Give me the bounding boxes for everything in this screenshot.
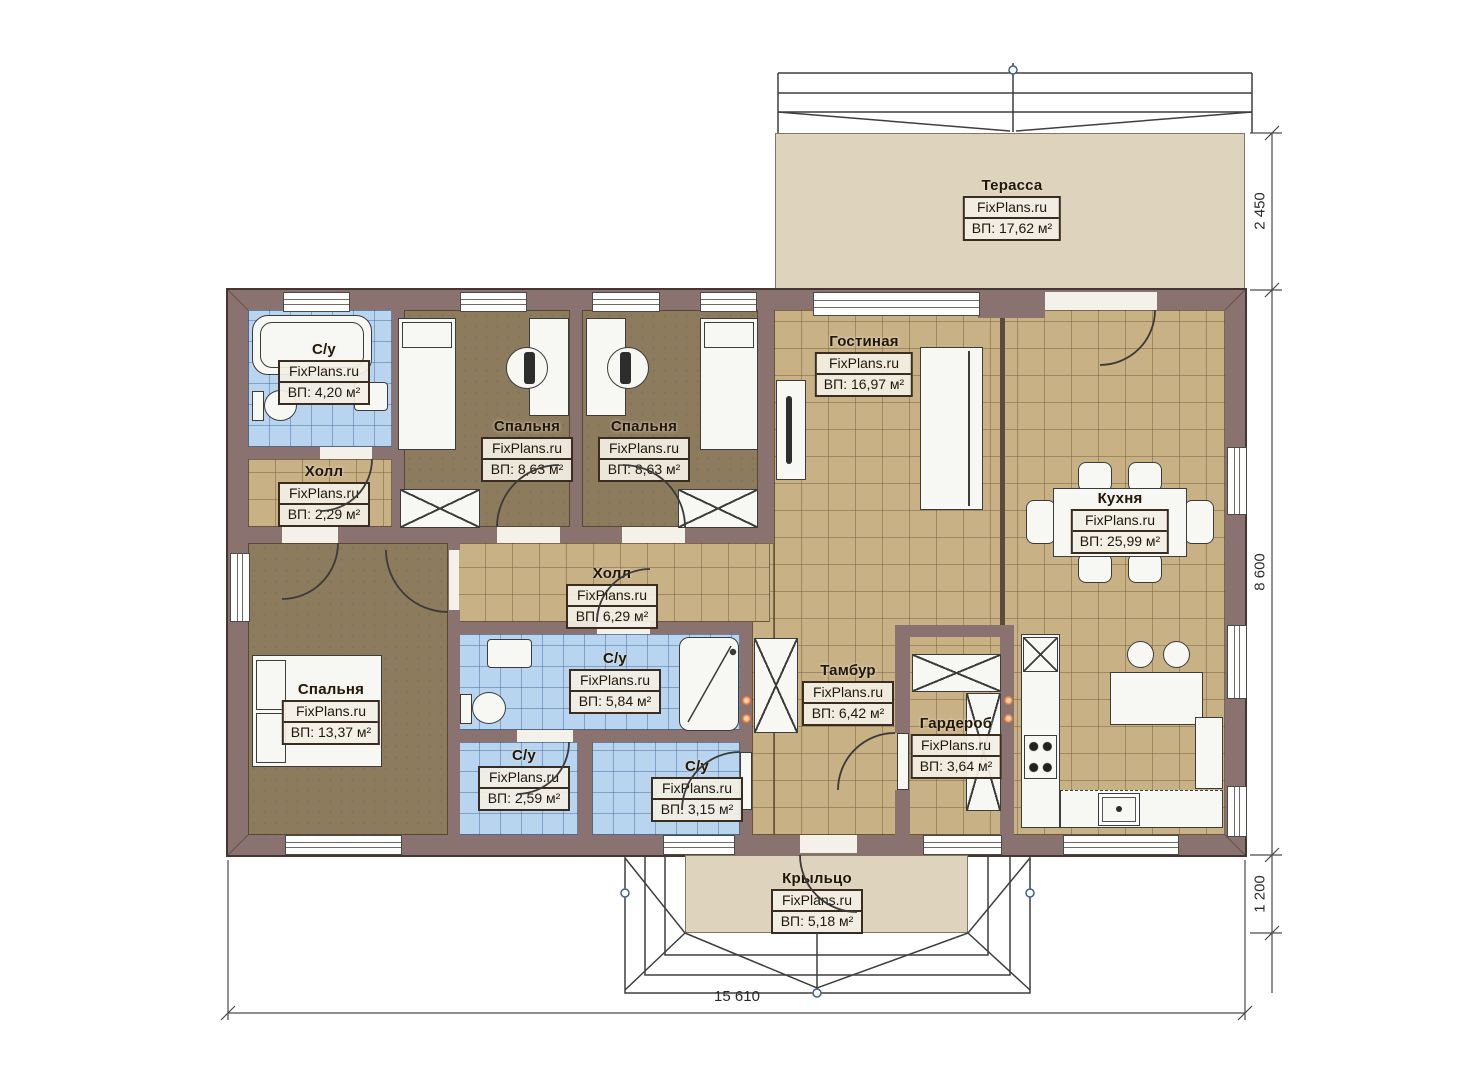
wall bbox=[448, 610, 460, 835]
brand-watermark: FixPlans.ru bbox=[568, 586, 656, 605]
floor-plan: Терасса FixPlans.ruВП: 17,62 м² С/у FixP… bbox=[0, 0, 1473, 1080]
sink bbox=[487, 639, 532, 668]
room-area: ВП: 4,20 м² bbox=[280, 381, 368, 402]
toilet-bowl bbox=[472, 692, 506, 724]
brand-watermark: FixPlans.ru bbox=[280, 362, 368, 381]
room-name: Гостиная bbox=[815, 333, 913, 350]
terrace-roof bbox=[778, 63, 1252, 133]
room-name: С/у bbox=[651, 758, 743, 775]
closet bbox=[754, 638, 798, 733]
room-label-bathroom-top: С/у FixPlans.ruВП: 4,20 м² bbox=[278, 341, 370, 405]
room-label-bedroom-2: Спальня FixPlans.ruВП: 8,63 м² bbox=[598, 418, 690, 482]
room-name: С/у bbox=[478, 747, 570, 764]
wall bbox=[458, 730, 517, 742]
dimension-house-depth: 8 600 bbox=[1252, 553, 1269, 591]
dining-chair bbox=[1078, 553, 1112, 583]
brand-watermark: FixPlans.ru bbox=[773, 891, 861, 910]
wall bbox=[573, 730, 752, 742]
dining-chair bbox=[1128, 553, 1162, 583]
utility-dot bbox=[1004, 696, 1013, 705]
window bbox=[700, 292, 757, 312]
window bbox=[1227, 447, 1247, 515]
dining-chair bbox=[1026, 500, 1056, 544]
dishwasher bbox=[1023, 637, 1058, 672]
faucet-dot bbox=[1116, 806, 1122, 812]
room-label-tambour: Тамбур FixPlans.ruВП: 6,42 м² bbox=[802, 662, 894, 726]
brand-watermark: FixPlans.ru bbox=[653, 779, 741, 798]
window bbox=[1063, 835, 1179, 855]
door-opening-terrace-kitchen bbox=[1045, 292, 1157, 310]
brand-watermark: FixPlans.ru bbox=[571, 671, 659, 690]
wall bbox=[978, 292, 1045, 318]
room-label-hall-small: Холл FixPlans.ruВП: 2,29 м² bbox=[278, 463, 370, 527]
sofa-back-line bbox=[968, 351, 970, 506]
room-name: С/у bbox=[278, 341, 370, 358]
room-name: Крыльцо bbox=[771, 870, 863, 887]
door-opening-entrance bbox=[800, 835, 857, 853]
wardrobe-cabinet bbox=[400, 489, 480, 528]
window bbox=[283, 292, 350, 312]
office-chair-back bbox=[620, 352, 631, 384]
room-label-bedroom-master: Спальня FixPlans.ruВП: 13,37 м² bbox=[282, 681, 380, 745]
pillow bbox=[402, 322, 452, 348]
room-name: Спальня bbox=[598, 418, 690, 435]
room-name: Спальня bbox=[481, 418, 573, 435]
toilet-tank bbox=[252, 391, 264, 421]
room-area: ВП: 17,62 м² bbox=[965, 217, 1059, 238]
door-opening bbox=[497, 527, 560, 543]
wall bbox=[895, 625, 910, 733]
toilet-tank bbox=[460, 694, 472, 724]
room-area: ВП: 8,63 м² bbox=[483, 458, 571, 479]
shower bbox=[679, 637, 739, 731]
wall bbox=[1000, 637, 1014, 835]
pillow bbox=[704, 322, 754, 348]
utility-dot bbox=[742, 714, 751, 723]
door-opening bbox=[449, 550, 459, 610]
wall bbox=[740, 634, 752, 752]
dimension-porch-depth: 1 200 bbox=[1252, 875, 1269, 913]
room-name: Гардероб bbox=[911, 715, 1002, 732]
room-area: ВП: 13,37 м² bbox=[284, 721, 378, 742]
wall bbox=[895, 625, 1014, 637]
room-label-living: Гостиная FixPlans.ruВП: 16,97 м² bbox=[815, 333, 913, 397]
room-name: Спальня bbox=[282, 681, 380, 698]
door-opening bbox=[622, 527, 685, 543]
bar-stool bbox=[1163, 641, 1190, 668]
door-leaf bbox=[897, 733, 909, 790]
wardrobe-cabinet bbox=[912, 654, 1001, 692]
brand-watermark: FixPlans.ru bbox=[483, 439, 571, 458]
office-chair-back bbox=[524, 352, 535, 384]
room-label-hall-main: Холл FixPlans.ruВП: 6,29 м² bbox=[566, 565, 658, 629]
room-area: ВП: 3,15 м² bbox=[653, 798, 741, 819]
fridge bbox=[1195, 717, 1223, 789]
room-area: ВП: 3,64 м² bbox=[913, 755, 1000, 776]
window bbox=[230, 553, 250, 622]
cooktop bbox=[1024, 735, 1057, 779]
window bbox=[1227, 786, 1247, 837]
bar-stool bbox=[1127, 641, 1154, 668]
wall-partition-living-kitchen bbox=[1000, 318, 1005, 625]
wall bbox=[650, 622, 752, 634]
kitchen-island bbox=[1110, 672, 1203, 725]
wall bbox=[338, 527, 497, 543]
wall bbox=[758, 310, 774, 543]
room-area: ВП: 6,29 м² bbox=[568, 605, 656, 626]
room-label-porch: Крыльцо FixPlans.ruВП: 5,18 м² bbox=[771, 870, 863, 934]
room-area: ВП: 5,18 м² bbox=[773, 910, 861, 931]
room-area: ВП: 5,84 м² bbox=[571, 690, 659, 711]
wall bbox=[685, 527, 774, 543]
room-name: Холл bbox=[278, 463, 370, 480]
room-area: ВП: 16,97 м² bbox=[817, 373, 911, 394]
kitchen-counter bbox=[1060, 790, 1223, 828]
door-opening bbox=[282, 527, 338, 543]
window bbox=[285, 835, 402, 855]
room-label-wardrobe: Гардероб FixPlans.ruВП: 3,64 м² bbox=[911, 715, 1002, 779]
room-area: ВП: 8,63 м² bbox=[600, 458, 688, 479]
dining-chair bbox=[1184, 500, 1214, 544]
room-label-terrace: Терасса FixPlans.ruВП: 17,62 м² bbox=[963, 177, 1061, 241]
window bbox=[663, 835, 735, 855]
brand-watermark: FixPlans.ru bbox=[280, 484, 368, 503]
brand-watermark: FixPlans.ru bbox=[284, 702, 378, 721]
room-label-bathroom-third: С/у FixPlans.ruВП: 3,15 м² bbox=[651, 758, 743, 822]
window bbox=[592, 292, 660, 312]
window bbox=[460, 292, 527, 312]
room-label-bedroom-1: Спальня FixPlans.ruВП: 8,63 м² bbox=[481, 418, 573, 482]
wall bbox=[448, 543, 460, 550]
brand-watermark: FixPlans.ru bbox=[965, 198, 1059, 217]
brand-watermark: FixPlans.ru bbox=[817, 354, 911, 373]
room-area: ВП: 25,99 м² bbox=[1073, 530, 1167, 551]
dimension-terrace-depth: 2 450 bbox=[1252, 192, 1269, 230]
brand-watermark: FixPlans.ru bbox=[1073, 511, 1167, 530]
tv-screen bbox=[786, 396, 792, 464]
dimension-house-width: 15 610 bbox=[714, 988, 760, 1005]
brand-watermark: FixPlans.ru bbox=[600, 439, 688, 458]
door-opening bbox=[320, 447, 372, 459]
room-name: Кухня bbox=[1071, 490, 1169, 507]
wardrobe-cabinet bbox=[678, 489, 758, 528]
sliding-door-terrace bbox=[813, 292, 980, 316]
room-name: С/у bbox=[569, 650, 661, 667]
brand-watermark: FixPlans.ru bbox=[913, 736, 1000, 755]
room-label-kitchen: Кухня FixPlans.ruВП: 25,99 м² bbox=[1071, 490, 1169, 554]
brand-watermark: FixPlans.ru bbox=[480, 768, 568, 787]
window bbox=[923, 835, 1002, 855]
room-name: Терасса bbox=[963, 177, 1061, 194]
door-opening bbox=[517, 730, 573, 742]
room-label-bathroom-main: С/у FixPlans.ruВП: 5,84 м² bbox=[569, 650, 661, 714]
window bbox=[1227, 625, 1247, 699]
room-area: ВП: 2,29 м² bbox=[280, 503, 368, 524]
brand-watermark: FixPlans.ru bbox=[804, 683, 892, 702]
utility-dot bbox=[742, 696, 751, 705]
room-area: ВП: 2,59 м² bbox=[480, 787, 568, 808]
wall bbox=[895, 790, 910, 835]
room-label-bathroom-small: С/у FixPlans.ruВП: 2,59 м² bbox=[478, 747, 570, 811]
wall bbox=[248, 527, 282, 543]
sofa bbox=[920, 347, 983, 510]
room-area: ВП: 6,42 м² bbox=[804, 702, 892, 723]
wall bbox=[578, 742, 592, 835]
room-name: Холл bbox=[566, 565, 658, 582]
utility-dot bbox=[1004, 714, 1013, 723]
room-name: Тамбур bbox=[802, 662, 894, 679]
wall bbox=[560, 527, 622, 543]
